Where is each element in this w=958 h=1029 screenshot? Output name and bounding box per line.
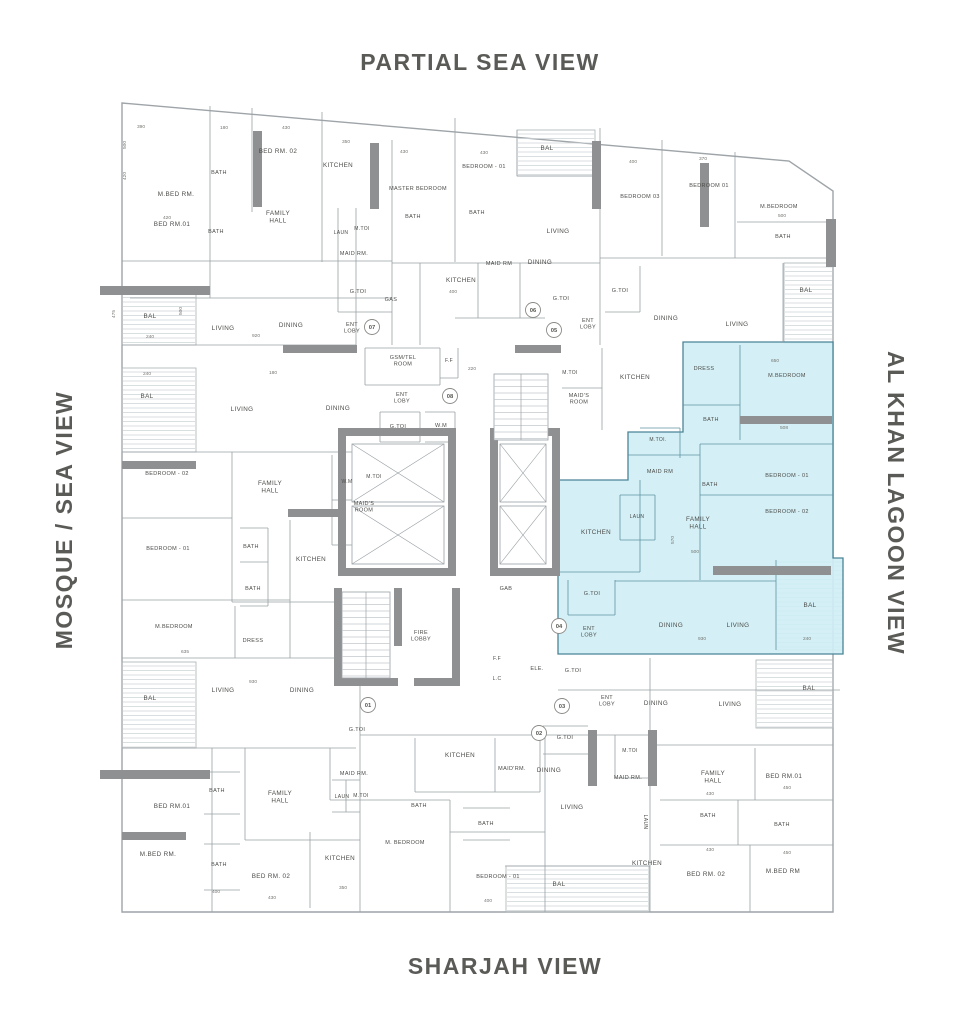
room-label-line: LOBY	[394, 399, 410, 405]
structural-wall	[515, 345, 561, 353]
room-label: BED RM.01	[154, 221, 191, 228]
room-label: LIVING	[212, 687, 235, 694]
room-label-line: DINING	[279, 322, 303, 329]
room-label-line: ROOM	[355, 508, 374, 514]
room-label: BATH	[774, 822, 790, 828]
room-label-line: BED RM.01	[766, 773, 803, 780]
dimension-label: 350	[339, 885, 347, 891]
room-label-line: KITCHEN	[620, 374, 650, 381]
dimension-label: 508	[780, 425, 788, 431]
room-label-line: M.TOI.	[649, 437, 666, 443]
room-label: DINING	[654, 315, 678, 322]
structural-wall	[700, 163, 709, 227]
room-label: KITCHEN	[296, 556, 326, 563]
room-label: M.BED RM.	[140, 851, 176, 858]
room-label: BATH	[478, 821, 494, 827]
structural-wall	[740, 416, 832, 424]
room-label-line: DINING	[528, 259, 552, 266]
room-label: BATH	[775, 234, 791, 240]
room-label-line: HALL	[269, 218, 286, 225]
room-label: KITCHEN	[632, 860, 662, 867]
dimension-label: 500	[178, 307, 184, 315]
structural-wall	[588, 730, 597, 786]
structural-wall	[452, 588, 460, 686]
highlighted-unit[interactable]	[558, 342, 843, 654]
structural-wall	[448, 428, 456, 576]
room-label: GAB	[500, 586, 513, 592]
room-label: M.TOI	[562, 370, 578, 376]
room-label-line: ROOM	[570, 400, 589, 406]
dimension-label: 635	[181, 649, 189, 655]
room-label: BED RM. 02	[259, 148, 298, 155]
structural-wall	[338, 428, 346, 576]
room-label: MAID RM.	[340, 771, 368, 777]
dimension-label: 420	[122, 172, 128, 180]
room-label: FAMILYHALL	[266, 210, 290, 225]
room-label-line: MAID'S	[354, 501, 375, 507]
dimension-label: 400	[484, 898, 492, 904]
room-label-line: LAUN	[642, 815, 648, 830]
room-label: ELE.	[530, 666, 543, 672]
room-label: FAMILYHALL	[258, 480, 282, 495]
room-label-line: MAID RM	[647, 469, 673, 475]
room-label: ENTLOBY	[599, 695, 615, 708]
room-label: LIVING	[212, 325, 235, 332]
room-label: FAMILYHALL	[701, 770, 725, 785]
room-label-line: DINING	[326, 405, 350, 412]
structural-wall	[100, 770, 210, 779]
room-label: G.TOI	[390, 424, 407, 430]
room-label-line: BATH	[478, 821, 494, 827]
room-label-line: MASTER BEDROOM	[389, 186, 447, 192]
room-label-line: BATH	[245, 586, 261, 592]
room-label-line: BAL	[144, 695, 157, 702]
dimension-label: 570	[670, 536, 676, 544]
room-label-line: BATH	[243, 544, 259, 550]
room-label: BEDROOM - 01	[462, 164, 506, 170]
unit-number-badge[interactable]: 05	[547, 323, 562, 338]
room-label: W.M	[435, 423, 447, 429]
room-label-line: G.TOI	[350, 289, 367, 295]
room-label-line: BED RM. 02	[259, 148, 298, 155]
room-label: BATH	[469, 210, 485, 216]
dimension-label: 430	[268, 895, 276, 901]
room-label-line: ENT	[346, 322, 358, 328]
room-label: M.BEDROOM	[768, 373, 806, 379]
room-label: BAL	[141, 393, 154, 400]
dimension-label: 650	[771, 358, 779, 364]
unit-number-badge[interactable]: 02	[532, 726, 547, 741]
room-label-line: BED RM.01	[154, 221, 191, 228]
view-label-bottom: SHARJAH VIEW	[408, 953, 602, 979]
room-label-line: FIRE	[414, 630, 428, 636]
dimension-label: 475	[111, 310, 117, 318]
room-label-line: MAID'S	[569, 393, 590, 399]
dimension-label: 180	[269, 370, 277, 376]
room-label-line: M.BED RM.	[158, 191, 194, 198]
room-label-line: F.F	[493, 656, 501, 662]
room-label: M.TOI	[353, 793, 369, 799]
dimension-label: 400	[629, 159, 637, 165]
view-label-left: MOSQUE / SEA VIEW	[51, 391, 77, 650]
room-label: LIVING	[719, 701, 742, 708]
room-label: M. BEDROOM	[385, 840, 425, 846]
room-label-line: BAL	[804, 602, 817, 609]
room-label: GSM/TELROOM	[390, 355, 417, 368]
room-label: KITCHEN	[620, 374, 650, 381]
room-label-line: ENT	[582, 318, 594, 324]
dimension-label: 390	[137, 124, 145, 130]
room-label: BEDROOM - 01	[765, 473, 809, 479]
room-label: DINING	[659, 622, 683, 629]
dimension-label: 240	[143, 371, 151, 377]
room-label-line: BATH	[405, 214, 421, 220]
room-label-line: BEDROOM - 01	[146, 546, 190, 552]
dimension-label: 500	[778, 213, 786, 219]
room-label-line: HALL	[704, 778, 721, 785]
room-label-line: BAL	[800, 287, 813, 294]
structural-wall	[122, 461, 196, 469]
unit-number-badge[interactable]: 03	[555, 699, 570, 714]
unit-number-text: 08	[447, 394, 454, 400]
room-label-line: M.BED RM.	[140, 851, 176, 858]
room-label-line: G.TOI	[553, 296, 570, 302]
room-label-line: FAMILY	[258, 480, 282, 487]
unit-number-text: 07	[369, 325, 375, 331]
room-label-line: BEDROOM - 01	[765, 473, 809, 479]
dimension-label: 920	[252, 333, 260, 339]
structural-wall	[122, 832, 186, 840]
room-label-line: LIVING	[212, 325, 235, 332]
room-label-line: BATH	[211, 862, 227, 868]
room-label: BATH	[243, 544, 259, 550]
room-label: MAID RM.	[614, 775, 642, 781]
room-label-line: ROOM	[394, 362, 413, 368]
room-label-line: M.TOI	[354, 226, 370, 232]
dimension-label: 180	[220, 125, 228, 131]
room-label-line: BATH	[209, 788, 225, 794]
room-label: BEDROOM 01	[689, 183, 729, 189]
structural-wall	[338, 568, 456, 576]
dimension-label: 240	[803, 636, 811, 642]
room-label-line: BEDROOM - 01	[462, 164, 506, 170]
room-label-line: BAL	[541, 145, 554, 152]
room-label-line: MAID'RM.	[498, 766, 526, 772]
structural-wall	[370, 143, 379, 209]
room-label-line: ENT	[396, 392, 408, 398]
room-label: KITCHEN	[445, 752, 475, 759]
room-label-line: HALL	[689, 524, 706, 531]
room-label: BEDROOM - 02	[145, 471, 189, 477]
dimension-label: 350	[342, 139, 350, 145]
dimension-label: 430	[706, 791, 714, 797]
room-label-line: LAUN	[334, 230, 349, 236]
room-label-line: BATH	[469, 210, 485, 216]
structural-wall	[648, 730, 657, 786]
room-label-line: F.F	[445, 358, 453, 364]
room-label: DINING	[644, 700, 668, 707]
room-label: DINING	[528, 259, 552, 266]
room-label-line: LIVING	[719, 701, 742, 708]
room-label: G.TOI	[557, 735, 574, 741]
balcony-area	[506, 866, 649, 912]
room-label: BAL	[804, 602, 817, 609]
room-label-line: BEDROOM 01	[689, 183, 729, 189]
room-label: BED RM. 02	[687, 871, 726, 878]
room-label-line: BAL	[141, 393, 154, 400]
room-label-line: GAS	[385, 297, 398, 303]
room-label-line: ELE.	[530, 666, 543, 672]
room-label-line: M.TOI	[366, 474, 382, 480]
room-label: BAL	[144, 695, 157, 702]
room-label-line: BATH	[208, 229, 224, 235]
unit-number-badge[interactable]: 07	[365, 320, 380, 335]
room-label: M.TOI	[366, 474, 382, 480]
room-label-line: LOBY	[599, 702, 615, 708]
room-label-line: BATH	[702, 482, 718, 488]
room-label-line: G.TOI	[390, 424, 407, 430]
structural-wall	[253, 131, 262, 207]
dimension-label: 430	[480, 150, 488, 156]
unit-number-text: 04	[556, 624, 563, 630]
room-label: MAID RM	[647, 469, 673, 475]
room-label: BAL	[144, 313, 157, 320]
room-label: G.TOI	[584, 591, 601, 597]
structural-wall	[394, 588, 402, 646]
structural-wall	[592, 141, 601, 209]
room-label-line: BEDROOM - 02	[145, 471, 189, 477]
dimension-label: 450	[783, 850, 791, 856]
room-label-line: BATH	[774, 822, 790, 828]
room-label-line: HALL	[261, 488, 278, 495]
room-label: LIVING	[231, 406, 254, 413]
unit-number-badge[interactable]: 04	[552, 619, 567, 634]
room-label-line: LIVING	[561, 804, 584, 811]
room-label: BAL	[553, 881, 566, 888]
room-label-line: MAID RM.	[340, 251, 368, 257]
room-label: BATH	[208, 229, 224, 235]
dimension-label: 240	[146, 334, 154, 340]
room-label: MAID RM.	[340, 251, 368, 257]
dimension-label: 450	[783, 785, 791, 791]
room-label-line: M.TOI	[562, 370, 578, 376]
floor-plan-svg: M.BED RM.BATHBED RM. 02KITCHENBED RM.01B…	[0, 0, 958, 1024]
room-label-line: DINING	[537, 767, 561, 774]
room-label-line: DINING	[290, 687, 314, 694]
room-label: LAUN	[334, 230, 349, 236]
room-label-line: LIVING	[547, 228, 570, 235]
room-label-line: G.TOI	[584, 591, 601, 597]
structural-wall	[713, 566, 831, 575]
room-label: G.TOI	[565, 668, 582, 674]
room-label-line: KITCHEN	[632, 860, 662, 867]
room-label: KITCHEN	[446, 277, 476, 284]
room-label: DINING	[290, 687, 314, 694]
room-label-line: LOBY	[344, 329, 360, 335]
room-label-line: M.TOI	[353, 793, 369, 799]
room-label: ENTLOBY	[394, 392, 410, 405]
room-label: F.F	[445, 358, 453, 364]
room-label-line: LIVING	[212, 687, 235, 694]
room-label-line: FAMILY	[686, 516, 710, 523]
room-label: LIVING	[547, 228, 570, 235]
room-label: KITCHEN	[325, 855, 355, 862]
room-label: BATH	[703, 417, 719, 423]
room-label-line: DINING	[659, 622, 683, 629]
room-label-line: M. BEDROOM	[385, 840, 425, 846]
room-label-line: LAUN	[630, 514, 645, 520]
unit-number-badge[interactable]: 01	[361, 698, 376, 713]
room-label: W.M	[341, 479, 352, 485]
room-label-line: ENT	[601, 695, 613, 701]
room-label-line: DINING	[644, 700, 668, 707]
room-label: DINING	[326, 405, 350, 412]
unit-number-text: 06	[530, 308, 537, 314]
unit-number-badge[interactable]: 06	[526, 303, 541, 318]
room-label: BEDROOM 03	[620, 194, 660, 200]
room-label-line: BATH	[211, 170, 227, 176]
room-label-line: KITCHEN	[325, 855, 355, 862]
room-label: LIVING	[561, 804, 584, 811]
room-label: LIVING	[727, 622, 750, 629]
dimension-label: 400	[449, 289, 457, 295]
room-label: MAID'SROOM	[354, 501, 375, 514]
room-label: DINING	[537, 767, 561, 774]
room-label: LAUN	[335, 794, 350, 800]
room-label-line: FAMILY	[266, 210, 290, 217]
room-label-line: BAL	[803, 685, 816, 692]
room-label-line: BATH	[703, 417, 719, 423]
room-label: BAL	[541, 145, 554, 152]
room-label-line: KITCHEN	[581, 529, 611, 536]
room-label-line: DRESS	[694, 366, 715, 372]
room-label: M.TOI	[622, 748, 638, 754]
structural-wall	[826, 219, 836, 267]
room-label: BATH	[405, 214, 421, 220]
dimension-label: 220	[468, 366, 476, 372]
room-label: M.TOI	[354, 226, 370, 232]
room-label: BEDROOM - 01	[146, 546, 190, 552]
structural-wall	[552, 428, 560, 576]
dimension-label: 930	[249, 679, 257, 685]
room-label-line: KITCHEN	[446, 277, 476, 284]
floor-plan-stage: M.BED RM.BATHBED RM. 02KITCHENBED RM.01B…	[0, 0, 958, 1024]
room-label-line: M.BED RM	[766, 868, 800, 875]
unit-number-badge[interactable]: 08	[443, 389, 458, 404]
room-label: BEDROOM - 02	[765, 509, 809, 515]
structural-wall	[100, 286, 210, 295]
room-label: KITCHEN	[581, 529, 611, 536]
dimension-label: 420	[163, 215, 171, 221]
room-label: BATH	[702, 482, 718, 488]
room-label-line: L.C	[493, 676, 502, 682]
room-label: BATH	[411, 803, 427, 809]
room-label: M.BEDROOM	[760, 204, 798, 210]
room-label: G.TOI	[349, 727, 366, 733]
room-label-line: M.BEDROOM	[155, 624, 193, 630]
room-label-line: G.TOI	[612, 288, 629, 294]
room-label: FAMILYHALL	[268, 790, 292, 805]
room-label-line: BED RM.01	[154, 803, 191, 810]
room-label-line: BED RM. 02	[252, 873, 291, 880]
room-label: BATH	[245, 586, 261, 592]
room-label: ENTLOBY	[580, 318, 596, 331]
room-label-line: LIVING	[231, 406, 254, 413]
structural-wall	[288, 509, 342, 517]
room-label: BEDROOM - 01	[476, 874, 520, 880]
room-label: MAID RM	[486, 261, 512, 267]
dimension-label: 930	[698, 636, 706, 642]
dimension-label: 430	[706, 847, 714, 853]
room-label-line: KITCHEN	[323, 162, 353, 169]
room-label: L.C	[493, 676, 502, 682]
room-label-line: W.M	[435, 423, 447, 429]
room-label-line: BED RM. 02	[687, 871, 726, 878]
room-label-line: W.M	[341, 479, 352, 485]
room-label-line: LOBBY	[411, 637, 431, 643]
room-label-line: MAID RM.	[340, 771, 368, 777]
room-label-line: ENT	[583, 626, 595, 632]
room-label: BED RM.01	[766, 773, 803, 780]
room-label: MAID'RM.	[498, 766, 526, 772]
room-label-line: M.BEDROOM	[760, 204, 798, 210]
room-label: MASTER BEDROOM	[389, 186, 447, 192]
room-label-line: FAMILY	[268, 790, 292, 797]
room-label: DRESS	[243, 638, 264, 644]
room-label: ENTLOBY	[581, 626, 597, 639]
room-label: BED RM. 02	[252, 873, 291, 880]
room-label-line: MAID RM.	[614, 775, 642, 781]
room-label-line: MAID RM	[486, 261, 512, 267]
room-label: BATH	[211, 862, 227, 868]
room-label: LIVING	[726, 321, 749, 328]
room-label: G.TOI	[612, 288, 629, 294]
room-label: M.BED RM.	[158, 191, 194, 198]
room-label-line: FAMILY	[701, 770, 725, 777]
room-label-line: BATH	[700, 813, 716, 819]
structural-wall	[334, 588, 342, 686]
structural-wall	[490, 428, 498, 576]
room-label-line: LOBY	[581, 633, 597, 639]
room-label: LAUN	[630, 514, 645, 520]
room-label-line: BAL	[553, 881, 566, 888]
room-label-line: M.BEDROOM	[768, 373, 806, 379]
room-label: ENTLOBY	[344, 322, 360, 335]
room-label: LAUN	[642, 815, 648, 830]
structural-wall	[283, 345, 357, 353]
room-label-line: BATH	[775, 234, 791, 240]
unit-number-text: 03	[559, 704, 566, 710]
structural-wall	[490, 568, 556, 576]
room-label-line: DRESS	[243, 638, 264, 644]
dimension-label: 500	[691, 549, 699, 555]
room-label-line: LIVING	[726, 321, 749, 328]
room-label: BATH	[700, 813, 716, 819]
room-label-line: LAUN	[335, 794, 350, 800]
room-label-line: BEDROOM - 01	[476, 874, 520, 880]
room-label: BED RM.01	[154, 803, 191, 810]
room-label-line: HALL	[271, 798, 288, 805]
room-label: BAL	[803, 685, 816, 692]
unit-number-text: 05	[551, 328, 558, 334]
room-label-line: G.TOI	[557, 735, 574, 741]
view-label-top: PARTIAL SEA VIEW	[360, 49, 600, 75]
room-label-line: GSM/TEL	[390, 355, 417, 361]
room-label: DRESS	[694, 366, 715, 372]
room-label: MAID'SROOM	[569, 393, 590, 406]
dimension-label: 500	[122, 141, 128, 149]
room-label-line: DINING	[654, 315, 678, 322]
